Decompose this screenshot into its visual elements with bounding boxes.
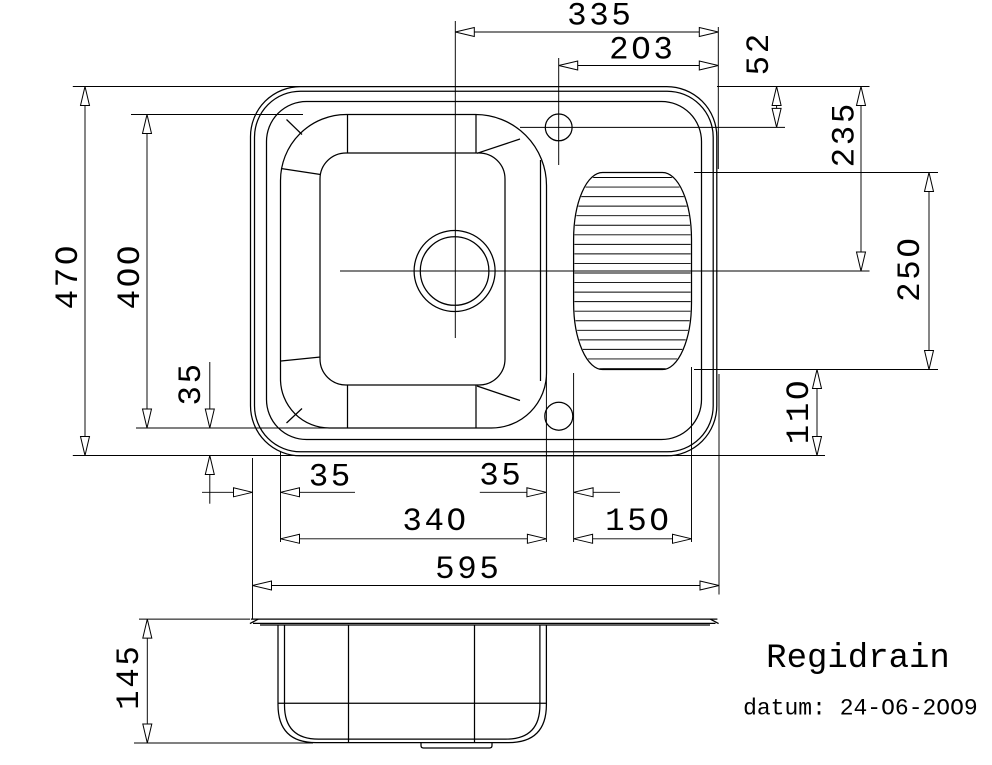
svg-text:25O: 25O: [892, 236, 929, 302]
svg-text:2O3: 2O3: [609, 32, 675, 69]
svg-text:35: 35: [309, 459, 353, 496]
svg-text:235: 235: [827, 101, 864, 167]
svg-text:35: 35: [173, 361, 210, 405]
svg-text:47O: 47O: [50, 243, 87, 309]
svg-text:15O: 15O: [605, 503, 671, 540]
svg-text:595: 595: [435, 551, 501, 588]
svg-text:35: 35: [479, 458, 523, 495]
svg-text:datum: 24-O6-2OO9: datum: 24-O6-2OO9: [743, 696, 978, 722]
svg-text:Regidrain: Regidrain: [766, 640, 950, 678]
svg-text:145: 145: [111, 644, 148, 710]
svg-text:11O: 11O: [781, 378, 818, 444]
svg-text:4OO: 4OO: [112, 243, 149, 309]
svg-text:34O: 34O: [402, 503, 468, 540]
svg-text:52: 52: [741, 31, 778, 75]
svg-text:335: 335: [567, 0, 633, 35]
